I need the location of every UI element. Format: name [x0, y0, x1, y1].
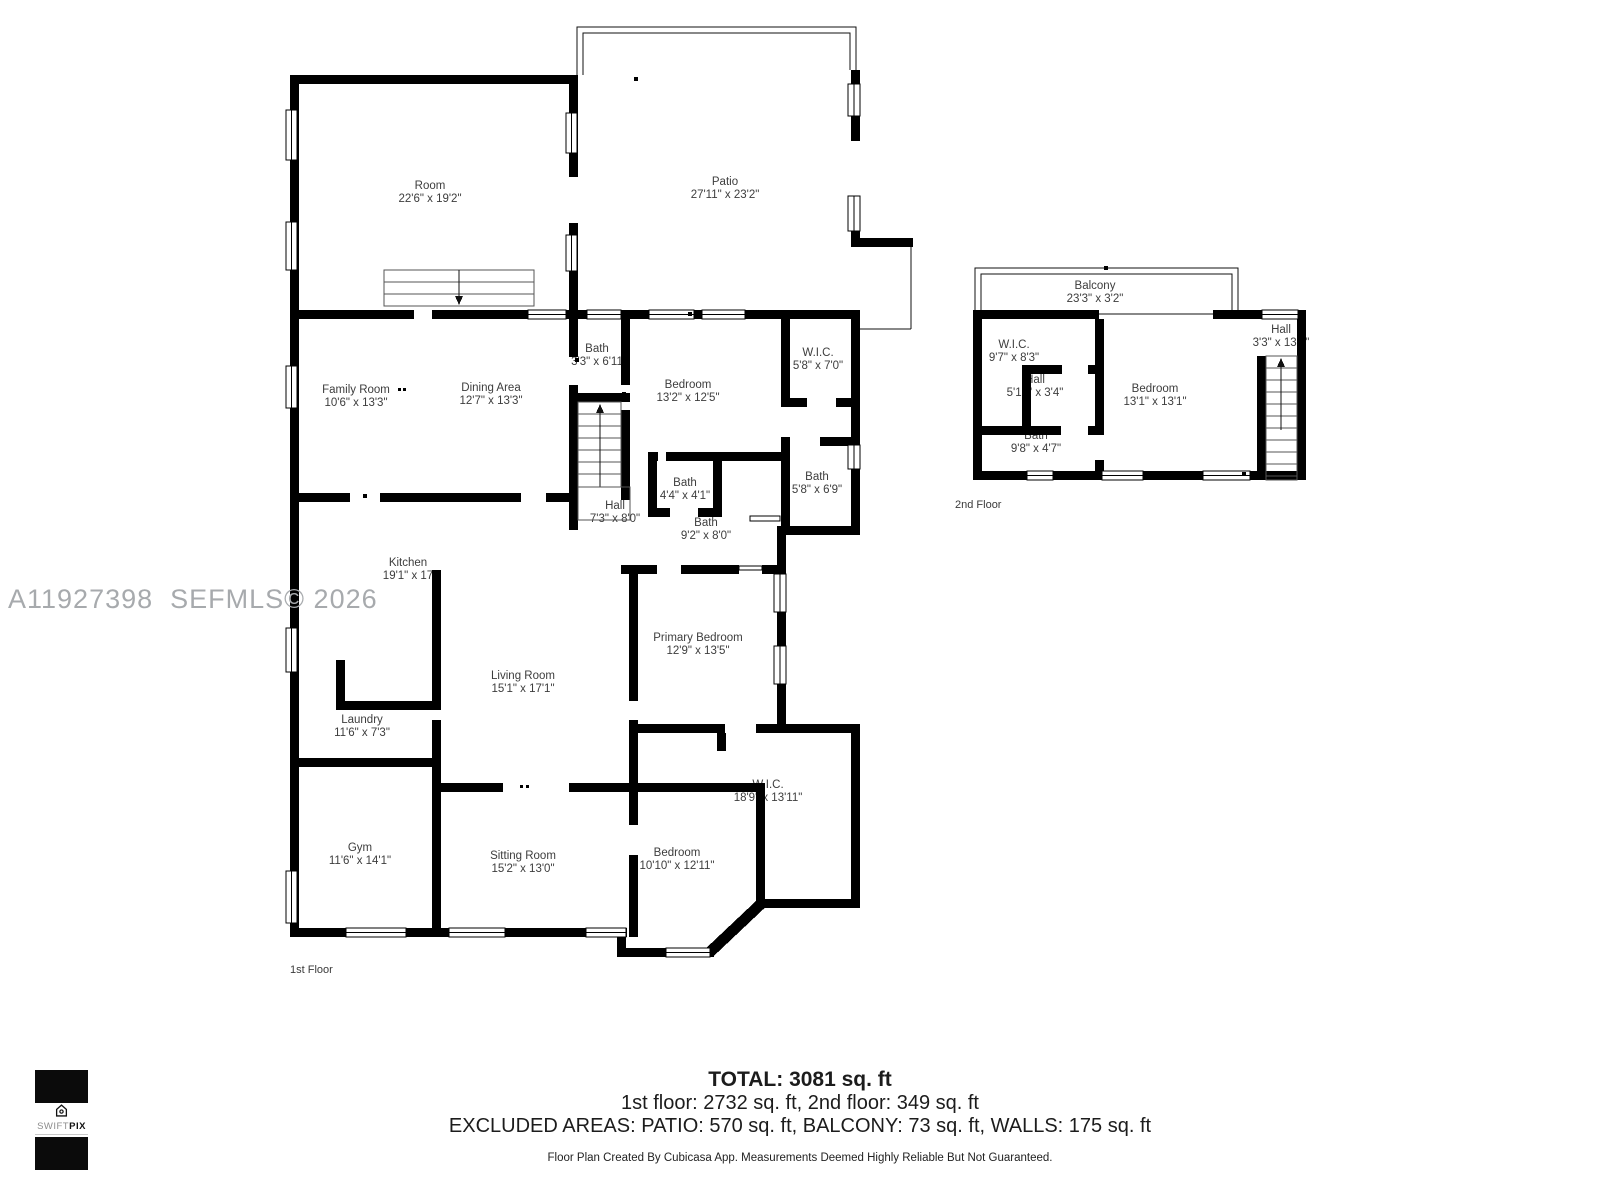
house-icon	[55, 1104, 68, 1117]
room-label-hall-2f: Hall5'10" x 3'4"	[1007, 374, 1064, 400]
room-label-bedroom-bottom: Bedroom10'10" x 12'11"	[639, 847, 714, 873]
room-label-bath-hall-small: Bath3'3" x 6'11	[571, 343, 623, 369]
room-label-living-room: Living Room15'1" x 17'1"	[491, 670, 555, 696]
room-label-bath-center: Bath9'2" x 8'0"	[681, 517, 731, 543]
swiftpix-logo: SWIFTPIX	[35, 1070, 88, 1170]
room-label-patio: Patio27'11" x 23'2"	[691, 176, 760, 202]
logo-block-bottom	[35, 1137, 88, 1170]
room-label-dining-area: Dining Area12'7" x 13'3"	[459, 382, 522, 408]
stairs-room-down	[384, 270, 534, 306]
room-label-gym: Gym11'6" x 14'1"	[329, 842, 391, 868]
room-label-bath-2f: Bath9'8" x 4'7"	[1011, 430, 1061, 456]
room-label-bedroom-2f: Bedroom13'1" x 13'1"	[1123, 383, 1186, 409]
logo-block-top	[35, 1070, 88, 1103]
mls-watermark: A11927398 SEFMLS© 2026	[8, 584, 378, 615]
area-summary: TOTAL: 3081 sq. ft 1st floor: 2732 sq. f…	[0, 1068, 1600, 1164]
floor-areas-text: 1st floor: 2732 sq. ft, 2nd floor: 349 s…	[0, 1092, 1600, 1115]
room-label-laundry: Laundry11'6" x 7'3"	[334, 714, 390, 740]
floorplan-page: Room22'6" x 19'2" Patio27'11" x 23'2" Fa…	[0, 0, 1600, 1200]
room-label-wic-2f: W.I.C.9'7" x 8'3"	[989, 339, 1039, 365]
room-label-sitting-room: Sitting Room15'2" x 13'0"	[490, 850, 556, 876]
total-area-text: TOTAL: 3081 sq. ft	[0, 1068, 1600, 1092]
logo-brand-text: SWIFTPIX	[35, 1122, 88, 1135]
stairs-2nd-floor-up	[1266, 356, 1297, 480]
room-label-hall-main: Hall7'3" x 8'0"	[590, 500, 640, 526]
room-label-family-room: Family Room10'6" x 13'3"	[322, 384, 390, 410]
room-label-room: Room22'6" x 19'2"	[398, 180, 461, 206]
room-label-hall-stairs-2f: Hall3'3" x 13'1"	[1253, 324, 1310, 350]
room-label-balcony: Balcony23'3" x 3'2"	[1067, 280, 1124, 306]
room-label-wic-front: W.I.C.5'8" x 7'0"	[793, 347, 843, 373]
disclaimer-text: Floor Plan Created By Cubicasa App. Meas…	[0, 1152, 1600, 1164]
room-label-bedroom-front: Bedroom13'2" x 12'5"	[656, 379, 719, 405]
room-label-wic-big: W.I.C.18'9" x 13'11"	[734, 779, 803, 805]
excluded-areas-text: EXCLUDED AREAS: PATIO: 570 sq. ft, BALCO…	[0, 1115, 1600, 1138]
windows	[286, 84, 1298, 957]
floor2-caption: 2nd Floor	[955, 499, 1001, 511]
room-label-bath-right: Bath5'8" x 6'9"	[792, 471, 842, 497]
bay-diagonal-wall	[710, 901, 764, 952]
room-label-primary-bedroom: Primary Bedroom12'9" x 13'5"	[653, 632, 742, 658]
floor1-caption: 1st Floor	[290, 964, 333, 976]
thin-details	[739, 516, 780, 570]
room-label-kitchen: Kitchen19'1" x 17	[383, 557, 433, 583]
room-label-bath-tiny: Bath4'4" x 4'1"	[660, 477, 710, 503]
